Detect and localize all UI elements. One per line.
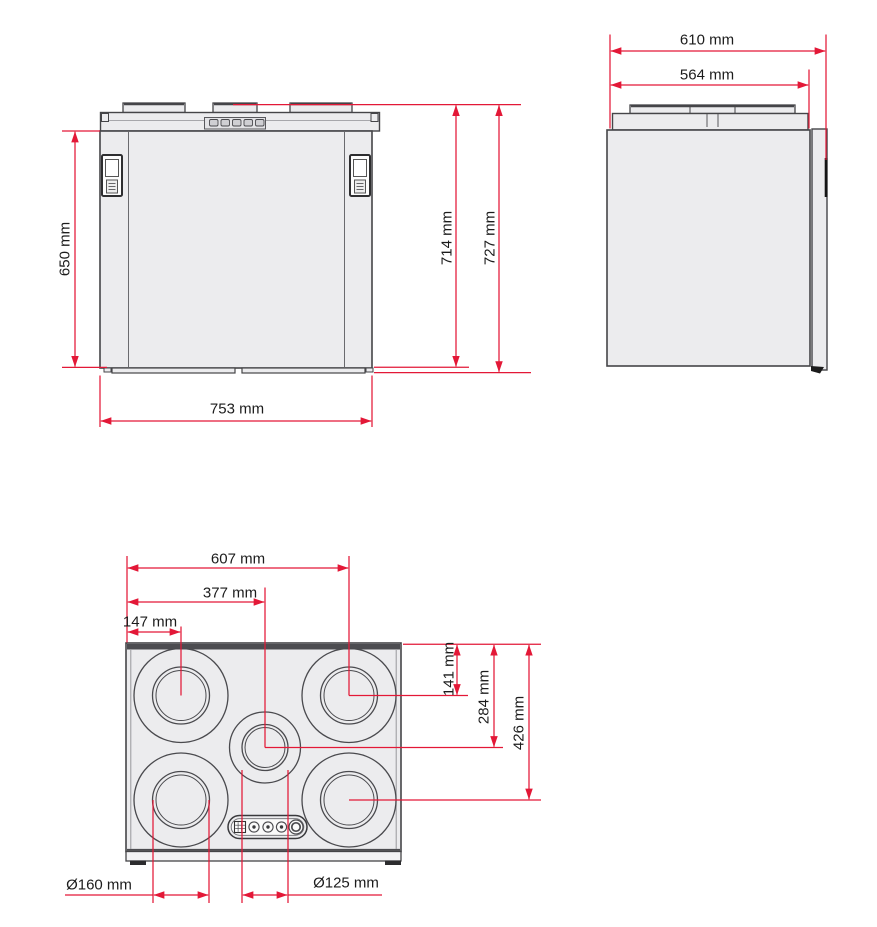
top-bottom-strip — [126, 852, 401, 862]
dimensional-drawing: 650 mm 714 mm 727 mm 753 mm 610 mm 564 m… — [0, 0, 877, 927]
top-foot-left-icon — [130, 861, 146, 866]
front-width-label: 753 mm — [210, 402, 264, 417]
front-view-drawing — [100, 103, 380, 373]
front-height-unit-label: 714 mm — [440, 211, 455, 265]
left-latch-icon — [102, 155, 122, 196]
front-height-body-label: 650 mm — [58, 222, 73, 276]
top-foot-right-icon — [385, 861, 401, 866]
top-row-top-label: 141 mm — [442, 642, 457, 696]
side-foot-icon — [811, 366, 824, 374]
top-diameter-center-label: Ø125 mm — [313, 876, 379, 891]
front-height-total-label: 727 mm — [483, 211, 498, 265]
side-top-cap — [613, 114, 809, 131]
side-body-panel — [607, 130, 810, 366]
top-col-center-label: 377 mm — [203, 585, 257, 600]
top-row-center-label: 284 mm — [477, 670, 492, 724]
drawing-linework — [0, 0, 877, 927]
top-diameter-large-label: Ø160 mm — [66, 878, 132, 893]
front-body-panel — [100, 131, 372, 368]
top-view-drawing — [126, 643, 401, 865]
front-connector-strip-icon — [205, 118, 266, 130]
control-panel-icon — [228, 816, 307, 839]
side-view-drawing — [607, 105, 827, 374]
side-depth-total-label: 610 mm — [680, 33, 734, 48]
side-duct-stubs-icon — [630, 105, 795, 114]
top-row-bottom-label: 426 mm — [512, 696, 527, 750]
side-depth-body-label: 564 mm — [680, 68, 734, 83]
right-latch-icon — [350, 155, 370, 196]
top-col-left-label: 147 mm — [123, 614, 177, 629]
top-col-right-label: 607 mm — [211, 552, 265, 567]
